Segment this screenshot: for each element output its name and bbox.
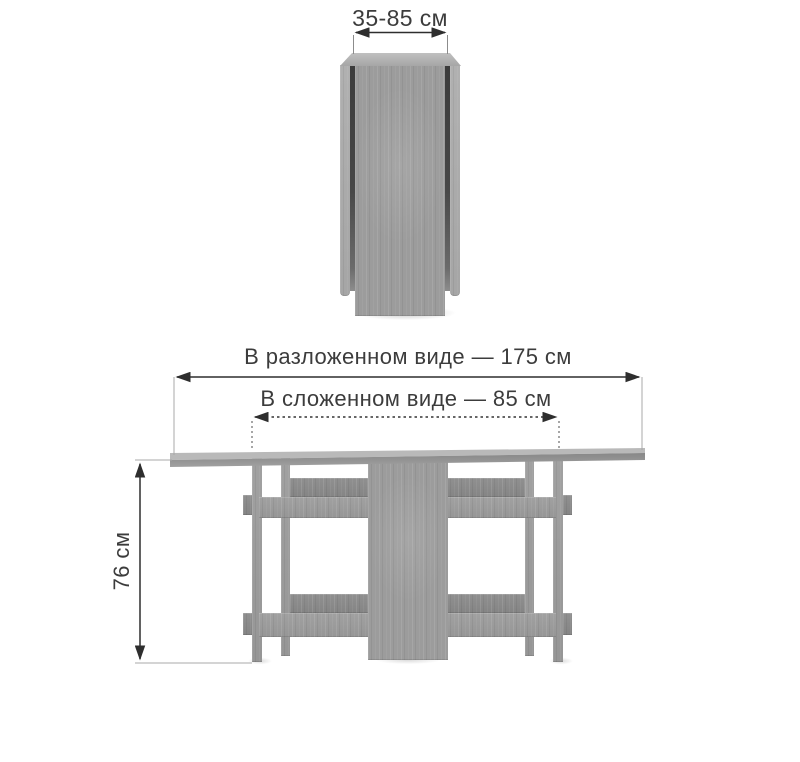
center-pedestal xyxy=(368,458,448,660)
right-lower-front-rail xyxy=(447,613,556,637)
dimension-label-unfolded-length: В разложенном виде — 175 см xyxy=(208,344,608,370)
product-dimension-diagram: 35-85 см В разложенном виде — 175 см В с… xyxy=(0,0,800,762)
folded-leaf-left xyxy=(340,65,350,296)
left-lower-back-rail xyxy=(290,594,368,613)
left-lower-front-rail xyxy=(259,613,368,637)
left-gate-stub-upper xyxy=(243,495,252,515)
folded-gap-right xyxy=(445,65,450,291)
dimension-label-folded-length: В сложенном виде — 85 см xyxy=(206,386,606,412)
folded-leaf-right xyxy=(450,65,460,296)
right-lower-back-rail xyxy=(447,594,525,613)
folded-table-body xyxy=(355,65,445,316)
dimension-label-height: 76 см xyxy=(109,516,135,606)
right-gate-stub-lower xyxy=(563,613,572,635)
right-upper-front-rail xyxy=(447,497,556,518)
dimension-label-folded-width: 35-85 см xyxy=(300,5,500,32)
right-gate-stub-upper xyxy=(563,495,572,515)
left-upper-front-rail xyxy=(259,497,368,518)
left-upper-back-rail xyxy=(290,478,368,497)
left-gate-stub-lower xyxy=(243,613,252,635)
right-upper-back-rail xyxy=(447,478,525,497)
